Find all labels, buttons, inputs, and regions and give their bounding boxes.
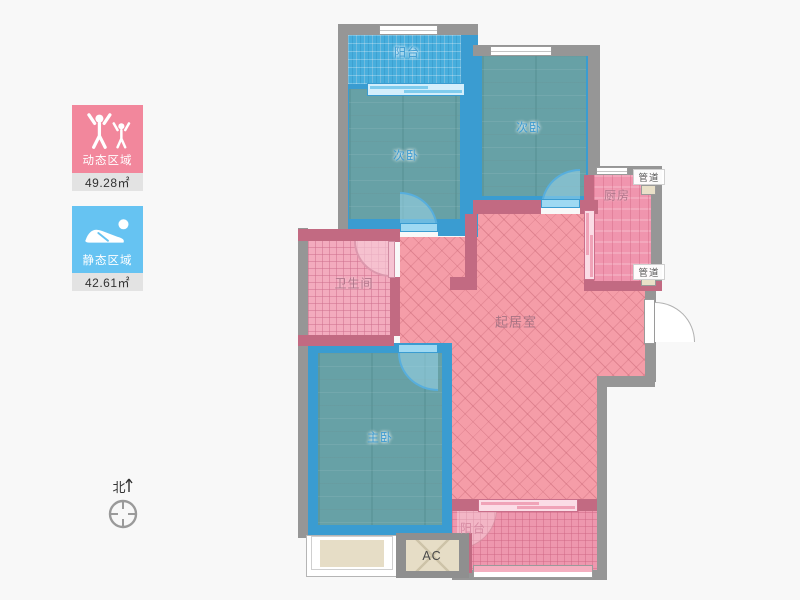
wall-bedroom-left-bottom-b (438, 222, 465, 236)
legend-dynamic-card: 动态区域 (72, 105, 143, 173)
room-label-bathroom: 卫生间 (334, 275, 373, 292)
wall-hall-stub-vertical (465, 214, 477, 282)
room-label-master-bedroom: 主卧 (367, 429, 393, 446)
room-label-living-room: 起居室 (495, 312, 537, 331)
wall-bathroom-bottom (298, 335, 394, 346)
window-balcony-bottom (473, 565, 593, 578)
ac-platform: AC (396, 533, 469, 578)
window-kitchen (596, 167, 628, 175)
dynamic-people-icon (72, 111, 143, 153)
room-label-balcony-top: 阳台 (394, 44, 420, 61)
window-bedroom-right (490, 46, 552, 56)
entry-door-arc (655, 302, 695, 342)
wall-hall-stub-foot (450, 277, 477, 290)
wall-left-upper (338, 24, 348, 238)
wall-balcony-top-right (578, 499, 597, 511)
bay-window (306, 535, 398, 577)
legend-dynamic-area: 49.28㎡ (72, 173, 143, 191)
compass: 北 (95, 474, 155, 538)
room-label-bedroom-left: 次卧 (393, 147, 419, 164)
entry-door-leaf (644, 299, 655, 344)
room-label-bedroom-right: 次卧 (516, 119, 542, 136)
sliding-door-kitchen (584, 210, 595, 280)
legend-static-label: 静态区域 (83, 252, 133, 268)
wall-left-lower (298, 228, 308, 538)
wall-bedroom-right-side (588, 45, 600, 175)
wall-bathroom-right-b (390, 277, 400, 336)
room-label-balcony-bottom: 阳台 (460, 520, 486, 537)
bedroom-left-door-leaf (400, 223, 438, 232)
master-bedroom-door-leaf (398, 344, 438, 353)
sliding-door-balcony-bottom (478, 499, 578, 512)
bathroom-door-leaf (388, 241, 395, 278)
duct-bottom-label: 管道 (633, 264, 665, 280)
wall-bedroom-right-bottom-a (473, 200, 541, 214)
floorplan-page: 动态区域 49.28㎡ 静态区域 42.61㎡ 北 (0, 0, 800, 600)
static-sleeping-icon (72, 212, 143, 252)
room-label-kitchen: 厨房 (604, 187, 630, 204)
duct-top-label: 管道 (633, 169, 665, 185)
wall-balcony-top-left (452, 499, 478, 511)
legend-dynamic-label: 动态区域 (83, 152, 133, 168)
duct-top-box (641, 185, 656, 195)
wall-right-lower (597, 376, 607, 580)
ac-label: AC (422, 549, 441, 563)
compass-north-label: 北 (112, 480, 125, 495)
legend-static-area: 42.61㎡ (72, 273, 143, 291)
wall-bathroom-top (298, 229, 394, 241)
window-balcony-top (379, 25, 438, 35)
wall-divider-cap (465, 24, 478, 35)
sliding-door-balcony-top (367, 83, 465, 96)
bedroom-right-door-leaf (541, 199, 580, 208)
legend-static-card: 静态区域 (72, 206, 143, 273)
